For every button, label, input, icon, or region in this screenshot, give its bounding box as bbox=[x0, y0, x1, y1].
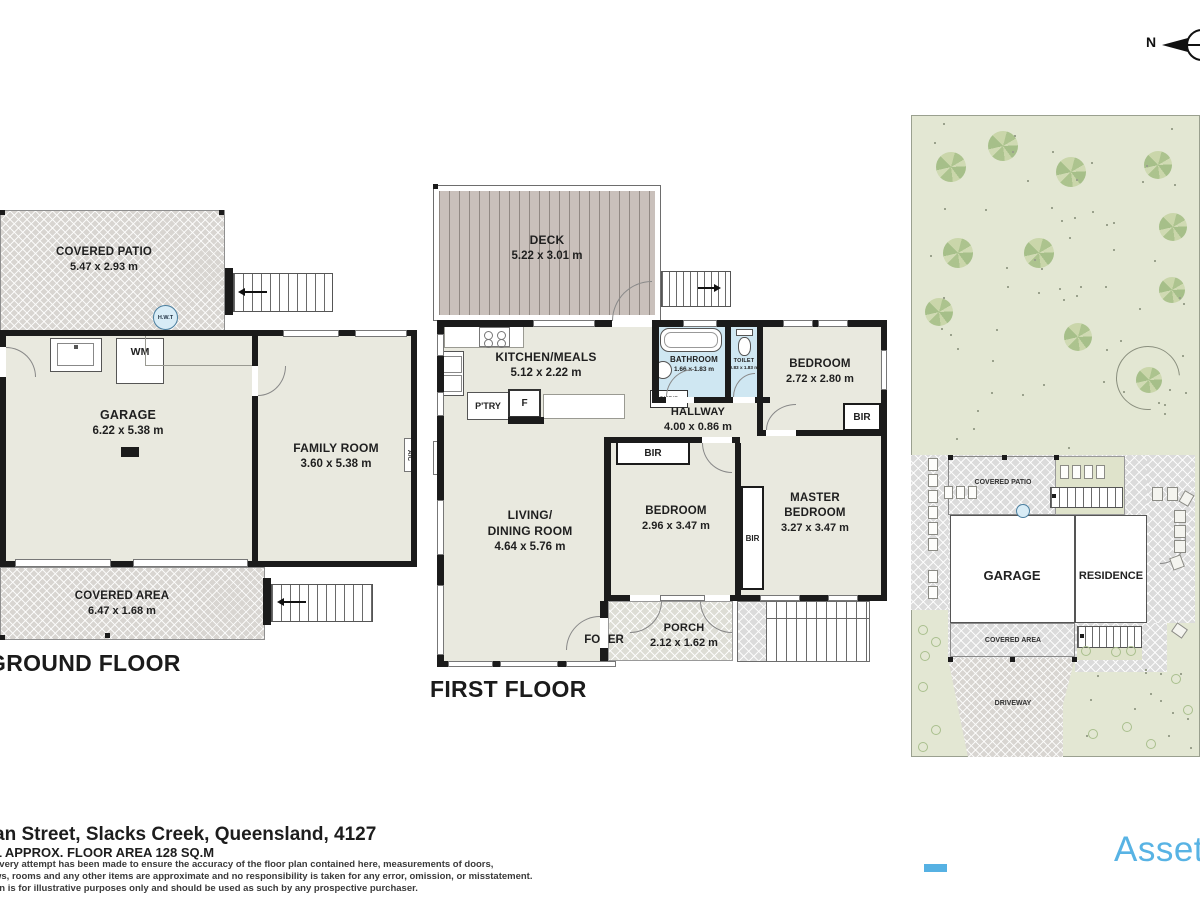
stairs-direction-arrow bbox=[714, 284, 721, 292]
stepping-stone bbox=[1174, 510, 1186, 523]
grass-speckle bbox=[1080, 286, 1082, 288]
grass-speckle bbox=[1185, 392, 1187, 394]
window bbox=[437, 392, 444, 416]
grass-speckle bbox=[1106, 224, 1108, 226]
site-driveway-label: DRIVEWAY bbox=[995, 700, 1032, 707]
window bbox=[437, 500, 444, 555]
porch-stairs bbox=[737, 601, 870, 662]
grass-speckle bbox=[1171, 128, 1173, 130]
living-dining-label: LIVING/ DINING ROOM 4.64 x 5.76 m bbox=[488, 508, 573, 555]
family-room-label: FAMILY ROOM 3.60 x 5.38 m bbox=[293, 441, 379, 472]
stairs-direction-line bbox=[284, 601, 306, 603]
bush-icon bbox=[1183, 705, 1193, 715]
door-opening bbox=[612, 320, 652, 327]
stair-treads bbox=[766, 602, 869, 661]
planter-box bbox=[928, 474, 938, 487]
grass-speckle bbox=[1134, 708, 1136, 710]
grass-speckle bbox=[977, 410, 979, 412]
covered-area-stairs bbox=[271, 584, 373, 622]
pantry-label: P'TRY bbox=[475, 401, 501, 411]
stove-icon bbox=[479, 327, 510, 347]
floorplan-page: { "compass": { "n": "N" }, "ground_floor… bbox=[0, 0, 1200, 900]
corner-marker bbox=[0, 635, 5, 640]
planter-box bbox=[944, 486, 953, 499]
grass-speckle bbox=[1014, 135, 1016, 137]
patio-stairs bbox=[233, 273, 333, 312]
stair-marker bbox=[1052, 494, 1056, 498]
corner-marker bbox=[1002, 455, 1007, 460]
disclaimer-line-3: an is for illustrative purposes only and… bbox=[0, 883, 418, 894]
grass-speckle bbox=[1006, 267, 1008, 269]
planter-box bbox=[928, 506, 938, 519]
sink-basin bbox=[443, 375, 462, 392]
planter-box bbox=[928, 458, 938, 471]
hallway-label: HALLWAY 4.00 x 0.86 m bbox=[664, 405, 732, 434]
site-hot-water-tank-icon bbox=[1016, 504, 1030, 518]
fridge-label: F bbox=[521, 398, 527, 409]
grass-speckle bbox=[956, 438, 958, 440]
first-floor-title: FIRST FLOOR bbox=[430, 676, 587, 703]
porch-label: PORCH 2.12 x 1.62 m bbox=[650, 621, 718, 650]
tree-icon bbox=[1159, 277, 1185, 303]
grass-speckle bbox=[1187, 718, 1189, 720]
planter-box bbox=[1084, 465, 1093, 479]
grass-speckle bbox=[950, 334, 952, 336]
grass-speckle bbox=[1059, 288, 1061, 290]
grass-speckle bbox=[1164, 413, 1166, 415]
bush-icon bbox=[1081, 646, 1091, 656]
wall-segment bbox=[652, 320, 659, 403]
stepping-stone bbox=[1174, 540, 1186, 553]
window bbox=[500, 661, 558, 667]
window bbox=[818, 320, 848, 327]
bush-icon bbox=[918, 682, 928, 692]
grass-speckle bbox=[1069, 237, 1071, 239]
address-text: an Street, Slacks Creek, Queensland, 412… bbox=[0, 824, 376, 846]
wall-segment bbox=[263, 578, 271, 625]
brand-accent-dash bbox=[924, 864, 947, 872]
grass-speckle bbox=[1179, 297, 1181, 299]
grass-speckle bbox=[1150, 693, 1152, 695]
grass-speckle bbox=[1034, 259, 1036, 261]
garage-bench bbox=[145, 334, 253, 366]
planter-box bbox=[928, 538, 938, 551]
planter-box bbox=[1096, 465, 1105, 479]
tree-icon bbox=[925, 298, 953, 326]
wall-segment bbox=[735, 443, 741, 595]
covered-patio-label: COVERED PATIO 5.47 x 2.93 m bbox=[56, 245, 152, 275]
bir-bedroom-top: BIR bbox=[843, 403, 881, 431]
garage-label: GARAGE 6.22 x 5.38 m bbox=[93, 407, 164, 439]
grass-speckle bbox=[1164, 404, 1166, 406]
bush-icon bbox=[918, 625, 928, 635]
grass-speckle bbox=[1160, 700, 1162, 702]
door-opening bbox=[600, 618, 608, 648]
toilet-bowl-icon bbox=[738, 337, 751, 356]
grass-speckle bbox=[1027, 180, 1029, 182]
grass-speckle bbox=[1160, 673, 1162, 675]
site-covered-area-label: COVERED AREA bbox=[985, 637, 1041, 644]
site-residence bbox=[1075, 515, 1147, 623]
grass-speckle bbox=[996, 329, 998, 331]
grass-speckle bbox=[1174, 184, 1176, 186]
grass-speckle bbox=[1074, 217, 1076, 219]
corner-marker bbox=[219, 210, 224, 215]
bush-icon bbox=[1122, 722, 1132, 732]
planter-box bbox=[1060, 465, 1069, 479]
corner-marker bbox=[948, 657, 953, 662]
grass-speckle bbox=[943, 297, 945, 299]
stair-marker bbox=[1080, 634, 1084, 638]
corner-marker bbox=[948, 455, 953, 460]
grass-speckle bbox=[941, 328, 943, 330]
pantry: P'TRY bbox=[467, 392, 509, 420]
planter-box bbox=[928, 570, 938, 583]
stair-landing-line bbox=[766, 618, 869, 619]
tree-icon bbox=[1056, 157, 1086, 187]
grass-speckle bbox=[1007, 286, 1009, 288]
compass-rose-line bbox=[1188, 44, 1200, 46]
door-opening bbox=[766, 430, 796, 436]
grass-speckle bbox=[944, 208, 946, 210]
burner bbox=[484, 339, 493, 348]
tree-icon bbox=[943, 238, 973, 268]
grass-speckle bbox=[1142, 181, 1144, 183]
corner-marker bbox=[1054, 455, 1059, 460]
grass-speckle bbox=[1158, 402, 1160, 404]
grass-speckle bbox=[1043, 384, 1045, 386]
bush-icon bbox=[920, 651, 930, 661]
bedroom-mid-label: BEDROOM 2.96 x 3.47 m bbox=[642, 504, 710, 534]
grass-speckle bbox=[1061, 220, 1063, 222]
grass-speckle bbox=[1076, 295, 1078, 297]
grass-speckle bbox=[1145, 669, 1147, 671]
corner-marker bbox=[1072, 657, 1077, 662]
window bbox=[283, 330, 339, 337]
grass-speckle bbox=[1113, 249, 1115, 251]
window bbox=[683, 320, 717, 327]
grass-speckle bbox=[1041, 268, 1043, 270]
planter-box bbox=[1072, 465, 1081, 479]
kitchen-counter-right bbox=[543, 394, 625, 419]
grass-speckle bbox=[930, 255, 932, 257]
ground-floor-title: GROUND FLOOR bbox=[0, 650, 181, 677]
planter-box bbox=[928, 490, 938, 503]
master-bedroom-label: MASTER BEDROOM 3.27 x 3.47 m bbox=[781, 491, 849, 536]
corner-marker bbox=[1010, 657, 1015, 662]
stair-landing bbox=[738, 602, 766, 661]
grass-speckle bbox=[1113, 222, 1115, 224]
floor-area-text: L APPROX. FLOOR AREA 128 SQ.M bbox=[0, 845, 214, 860]
grass-speckle bbox=[1105, 286, 1107, 288]
grass-speckle bbox=[1190, 747, 1192, 749]
window bbox=[437, 585, 444, 655]
window bbox=[355, 330, 407, 337]
stairs-direction-line bbox=[698, 287, 715, 289]
grass-speckle bbox=[1180, 673, 1182, 675]
grass-speckle bbox=[991, 392, 993, 394]
hot-water-tank-icon: H.W.T bbox=[153, 305, 178, 330]
grass-speckle bbox=[1168, 735, 1170, 737]
grass-speckle bbox=[1123, 391, 1125, 393]
planter-box bbox=[928, 522, 938, 535]
bedroom-top-label: BEDROOM 2.72 x 2.80 m bbox=[786, 357, 854, 387]
grass-speckle bbox=[1012, 151, 1014, 153]
site-garage-label: GARAGE bbox=[983, 568, 1040, 583]
window bbox=[660, 595, 705, 601]
window bbox=[760, 595, 800, 601]
window bbox=[881, 350, 887, 390]
grass-speckle bbox=[1139, 308, 1141, 310]
bush-icon bbox=[1146, 739, 1156, 749]
bush-icon bbox=[918, 742, 928, 752]
grass-speckle bbox=[1092, 211, 1094, 213]
grass-speckle bbox=[1183, 303, 1185, 305]
stepping-stone bbox=[1167, 487, 1178, 501]
site-covered-patio-label: COVERED PATIO bbox=[975, 479, 1032, 486]
grass-speckle bbox=[1068, 447, 1070, 449]
grass-speckle bbox=[943, 123, 945, 125]
bush-icon bbox=[1111, 647, 1121, 657]
stairs-direction-line bbox=[245, 291, 267, 293]
grass-speckle bbox=[934, 142, 936, 144]
grass-speckle bbox=[992, 360, 994, 362]
grass-speckle bbox=[1052, 151, 1054, 153]
bathroom-label: BATHROOM 1.66 x 1.83 m bbox=[670, 355, 718, 374]
grass-speckle bbox=[1076, 179, 1078, 181]
grass-speckle bbox=[1086, 735, 1088, 737]
grass-speckle bbox=[957, 348, 959, 350]
tap-icon bbox=[74, 345, 78, 349]
window bbox=[133, 559, 248, 567]
disclaimer-line-1: every attempt has been made to ensure th… bbox=[0, 859, 493, 870]
wall-segment bbox=[725, 320, 731, 397]
grass-speckle bbox=[1106, 349, 1108, 351]
grass-speckle bbox=[1063, 299, 1065, 301]
window bbox=[828, 595, 858, 601]
tree-icon bbox=[936, 152, 966, 182]
planter-box bbox=[968, 486, 977, 499]
toilet-label: TOILET 0.83 x 1.83 m bbox=[730, 358, 759, 371]
burner bbox=[497, 339, 506, 348]
bush-icon bbox=[931, 725, 941, 735]
grass-speckle bbox=[1154, 260, 1156, 262]
wall-segment bbox=[604, 437, 611, 601]
window bbox=[783, 320, 813, 327]
door-opening bbox=[666, 397, 694, 403]
tree-icon bbox=[1159, 213, 1187, 241]
grass-speckle bbox=[973, 428, 975, 430]
toilet-cistern-icon bbox=[736, 329, 753, 336]
tree-icon bbox=[1024, 238, 1054, 268]
compass-n-label: N bbox=[1146, 34, 1156, 50]
grass-speckle bbox=[1038, 292, 1040, 294]
covered-area-label: COVERED AREA 6.47 x 1.68 m bbox=[75, 589, 170, 619]
wall-segment bbox=[225, 268, 233, 315]
corner-marker bbox=[0, 210, 5, 215]
wall-segment bbox=[757, 320, 763, 430]
bush-icon bbox=[1088, 729, 1098, 739]
grass-speckle bbox=[1103, 381, 1105, 383]
grass-speckle bbox=[985, 209, 987, 211]
window bbox=[448, 661, 493, 667]
planter-box bbox=[928, 586, 938, 599]
window bbox=[437, 334, 444, 356]
grass-speckle bbox=[1097, 675, 1099, 677]
site-bottom-stairs bbox=[1077, 626, 1142, 648]
corner-marker bbox=[433, 184, 438, 189]
grass-speckle bbox=[1022, 394, 1024, 396]
site-driveway bbox=[948, 658, 1075, 757]
window bbox=[533, 320, 595, 327]
grass-speckle bbox=[1120, 340, 1122, 342]
planter-box bbox=[956, 486, 965, 499]
stairs-direction-arrow bbox=[277, 598, 284, 606]
stepping-stone bbox=[1152, 487, 1163, 501]
window bbox=[566, 661, 616, 667]
bush-icon bbox=[931, 637, 941, 647]
fridge: F bbox=[508, 389, 541, 418]
site-residence-label: RESIDENCE bbox=[1079, 570, 1143, 582]
bir-master: BIR bbox=[741, 486, 764, 590]
tree-icon bbox=[1144, 151, 1172, 179]
wall-segment bbox=[508, 417, 544, 424]
grass-speckle bbox=[1146, 165, 1148, 167]
brand-logo-text: Asset bbox=[1114, 830, 1200, 870]
grass-speckle bbox=[1169, 389, 1171, 391]
grass-speckle bbox=[1090, 699, 1092, 701]
wall-segment bbox=[121, 447, 139, 457]
bathtub-inner bbox=[664, 332, 718, 348]
grass-speckle bbox=[1172, 712, 1174, 714]
sink-basin bbox=[443, 356, 462, 373]
stepping-stone bbox=[1174, 525, 1186, 538]
stairs-direction-arrow bbox=[238, 288, 245, 296]
disclaimer-line-2: ws, rooms and any other items are approx… bbox=[0, 871, 533, 882]
site-top-stairs bbox=[1050, 487, 1123, 508]
door-opening bbox=[733, 397, 755, 403]
bush-icon bbox=[1126, 646, 1136, 656]
bir-bedroom-mid: BIR bbox=[616, 441, 690, 465]
deck-label: DECK 5.22 x 3.01 m bbox=[512, 233, 583, 264]
grass-speckle bbox=[1182, 355, 1184, 357]
tree-icon bbox=[1064, 323, 1092, 351]
compass-arrow-icon bbox=[1162, 38, 1188, 52]
bush-icon bbox=[1171, 674, 1181, 684]
wall-segment bbox=[411, 330, 417, 567]
grass-speckle bbox=[1145, 672, 1147, 674]
grass-speckle bbox=[1091, 162, 1093, 164]
kitchen-meals-label: KITCHEN/MEALS 5.12 x 2.22 m bbox=[495, 350, 596, 381]
corner-marker bbox=[105, 633, 110, 638]
grass-speckle bbox=[1051, 207, 1053, 209]
tree-icon bbox=[1136, 367, 1162, 393]
window bbox=[15, 559, 111, 567]
